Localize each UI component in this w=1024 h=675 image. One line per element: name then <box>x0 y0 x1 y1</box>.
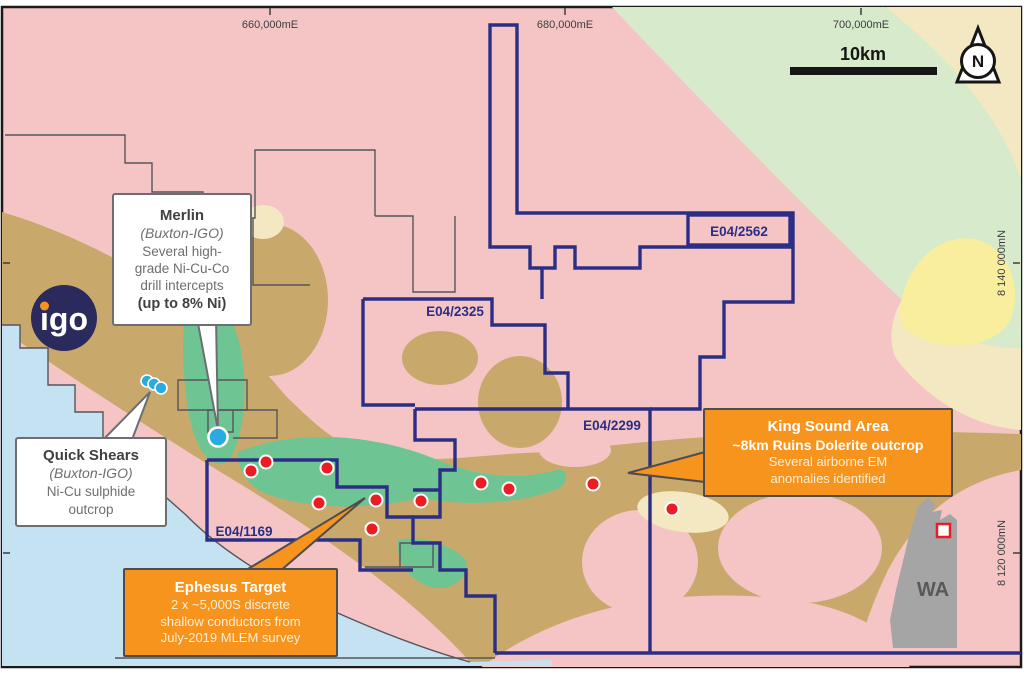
quick-shears-subtitle: (Buxton-IGO) <box>49 465 132 483</box>
quick-shears-title: Quick Shears <box>43 446 139 465</box>
merlin-line: Several high- <box>142 243 222 260</box>
northing-label-8120000: 8 120 000mN <box>996 520 1008 586</box>
merlin-callout: Merlin (Buxton-IGO) Several high- grade … <box>112 193 252 326</box>
geology-pink-window <box>539 433 611 467</box>
exploration-map: 660,000mE 680,000mE 700,000mE 8 140 000m… <box>0 0 1024 675</box>
king-sound-callout: King Sound Area ~8km Ruins Dolerite outc… <box>703 408 953 497</box>
red-dot <box>313 497 326 510</box>
tenement-label-E04-1169: E04/1169 <box>215 524 272 539</box>
red-dot <box>475 477 488 490</box>
red-dot <box>366 523 379 536</box>
quick-shears-line: outcrop <box>68 501 113 518</box>
king-sound-line: Several airborne EM <box>769 454 888 471</box>
ephesus-callout: Ephesus Target 2 x ~5,000S discrete shal… <box>123 568 338 657</box>
ephesus-title: Ephesus Target <box>175 578 286 597</box>
igo-logo-orange-dot <box>40 302 49 311</box>
quick-shears-callout: Quick Shears (Buxton-IGO) Ni-Cu sulphide… <box>15 437 167 527</box>
king-sound-line: anomalies identified <box>771 471 886 488</box>
blue-dot-quick-shears <box>155 382 167 394</box>
ephesus-line: July-2019 MLEM survey <box>161 630 300 647</box>
easting-label-700000: 700,000mE <box>833 19 889 31</box>
red-dot <box>503 483 516 496</box>
ephesus-line: shallow conductors from <box>160 614 300 631</box>
red-dot <box>321 462 334 475</box>
easting-label-660000: 660,000mE <box>242 19 298 31</box>
tenement-label-E04-2562: E04/2562 <box>710 224 768 239</box>
red-dot <box>587 478 600 491</box>
king-sound-highlight: ~8km Ruins Dolerite outcrop <box>733 437 924 455</box>
scale-bar-label: 10km <box>840 44 886 64</box>
wa-inset-label: WA <box>917 579 949 601</box>
blue-dot-merlin <box>209 428 228 447</box>
geology-tan-blob <box>478 356 562 448</box>
igo-logo: igo <box>31 285 97 351</box>
tenement-label-E04-2325: E04/2325 <box>426 304 484 319</box>
king-sound-title: King Sound Area <box>767 417 888 436</box>
north-arrow-label: N <box>972 52 984 71</box>
geology-tan-blob <box>402 331 478 385</box>
geology-pink-window <box>718 493 882 603</box>
merlin-line: drill intercepts <box>140 277 223 294</box>
red-dot <box>370 494 383 507</box>
merlin-line: grade Ni-Cu-Co <box>135 260 230 277</box>
merlin-highlight: (up to 8% Ni) <box>138 295 227 314</box>
red-dot <box>415 495 428 508</box>
merlin-title: Merlin <box>160 206 204 225</box>
northing-label-8140000: 8 140 000mN <box>996 230 1008 296</box>
red-dot <box>245 465 258 478</box>
merlin-subtitle: (Buxton-IGO) <box>140 225 223 243</box>
red-dot <box>260 456 273 469</box>
tenement-label-E04-2299: E04/2299 <box>583 418 641 433</box>
ephesus-line: 2 x ~5,000S discrete <box>171 597 290 614</box>
wa-inset-location-marker <box>937 524 950 537</box>
quick-shears-line: Ni-Cu sulphide <box>47 483 136 500</box>
red-dot <box>666 503 679 516</box>
easting-label-680000: 680,000mE <box>537 19 593 31</box>
